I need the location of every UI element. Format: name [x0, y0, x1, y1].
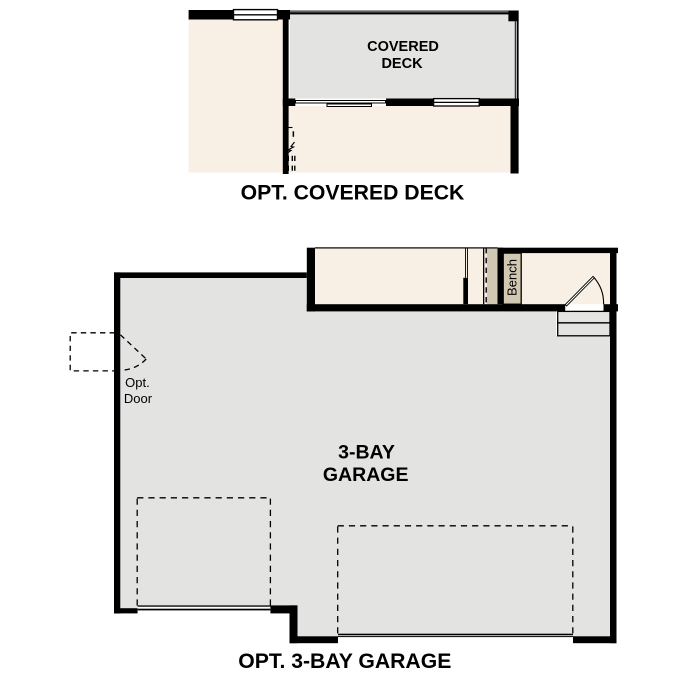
svg-text:Opt.: Opt. — [125, 375, 150, 390]
svg-text:OPT. COVERED DECK: OPT. COVERED DECK — [241, 181, 465, 204]
svg-text:COVERED: COVERED — [367, 39, 439, 55]
svg-text:Bench: Bench — [505, 259, 520, 296]
svg-text:DECK: DECK — [381, 56, 423, 72]
svg-text:Door: Door — [124, 391, 153, 406]
svg-text:OPT. 3-BAY GARAGE: OPT. 3-BAY GARAGE — [238, 650, 451, 673]
svg-text:3-BAY: 3-BAY — [338, 442, 395, 464]
svg-text:GARAGE: GARAGE — [323, 464, 409, 486]
